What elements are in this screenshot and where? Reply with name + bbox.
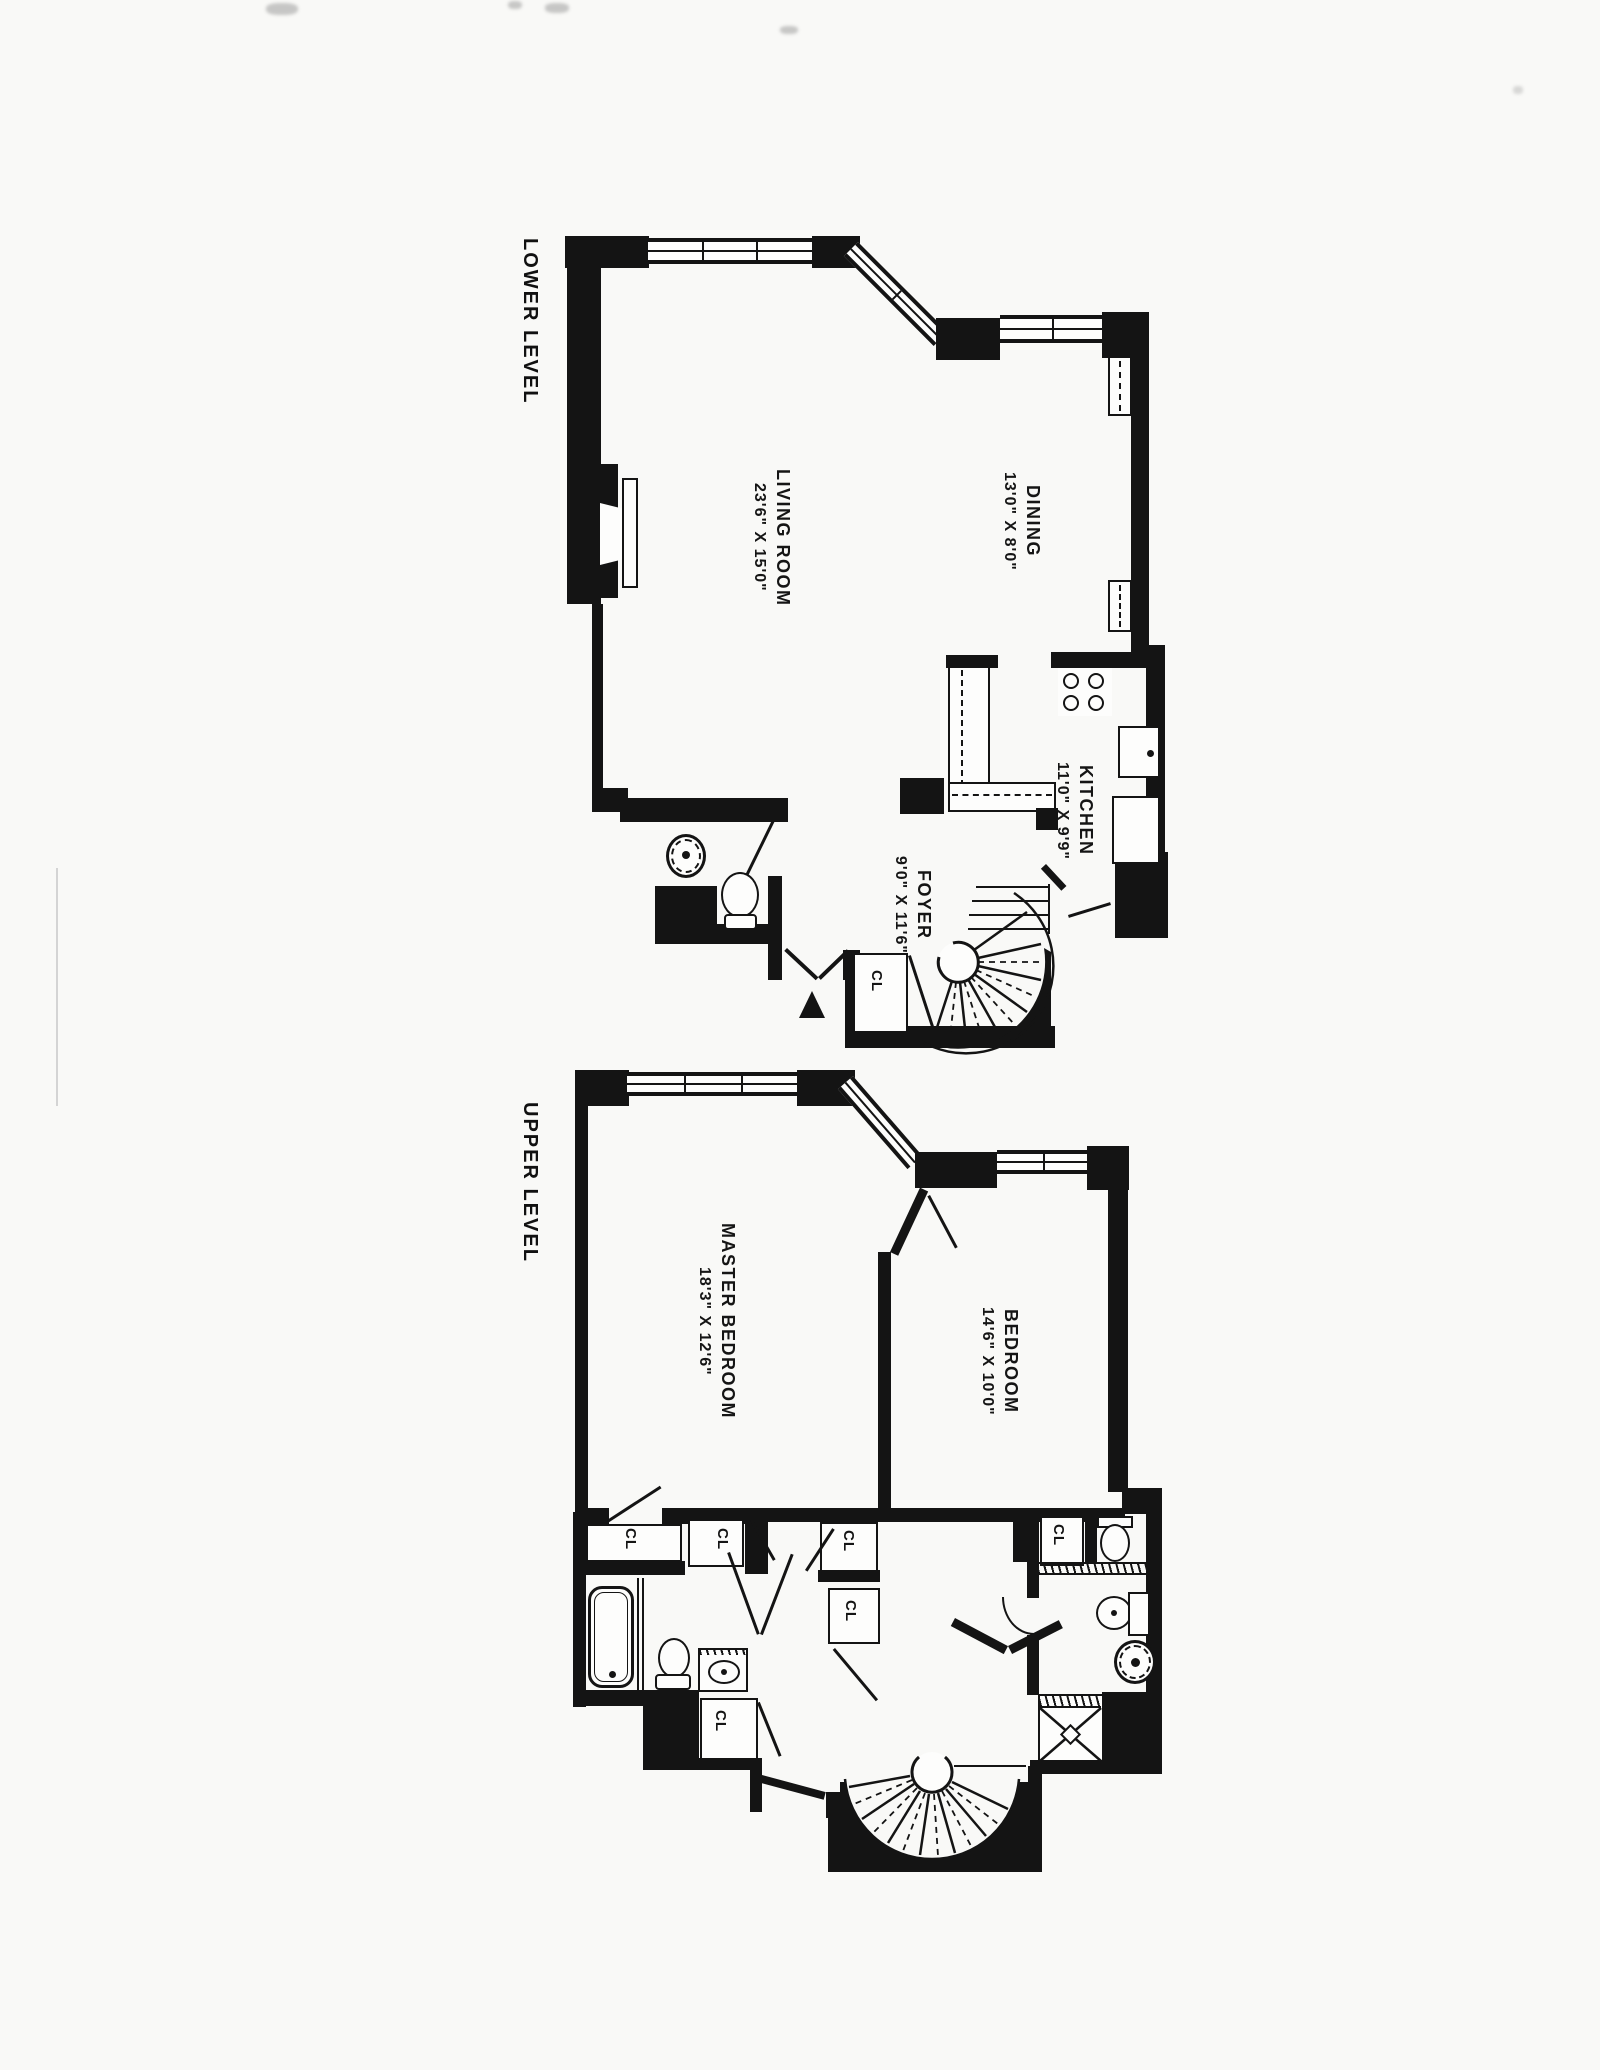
wall-segment	[567, 236, 601, 604]
wall-segment	[575, 1561, 685, 1575]
kitchen-sink	[1118, 726, 1160, 778]
room-dims: 18'3" X 12'6"	[695, 1192, 713, 1450]
toilet	[1100, 1524, 1130, 1562]
scan-smudge	[545, 3, 569, 13]
shower	[1038, 1694, 1104, 1764]
wall-segment	[818, 1570, 880, 1582]
window-mullion	[1052, 319, 1054, 339]
closet	[700, 1698, 758, 1762]
door-leaf	[746, 820, 775, 875]
door-leaf	[1068, 902, 1111, 918]
spiral-staircase	[845, 856, 1065, 1056]
wall-segment	[951, 1618, 1008, 1654]
scan-smudge	[508, 1, 522, 9]
wall-segment	[878, 1252, 891, 1512]
toilet-tank	[655, 1674, 691, 1690]
window-corner-bay	[844, 242, 948, 346]
window-mullion	[1043, 1154, 1045, 1170]
window-glazing-line	[627, 1083, 799, 1085]
scan-line-artifact	[56, 868, 58, 1106]
room-name: FOYER	[913, 830, 934, 980]
counter-dash	[961, 670, 963, 786]
radiator-dash	[1119, 585, 1121, 627]
room-name: BEDROOM	[1000, 1275, 1021, 1447]
bathtub	[588, 1586, 634, 1688]
drain-dot	[1131, 1658, 1140, 1667]
faucet-dot	[1147, 750, 1154, 757]
window	[627, 1072, 799, 1096]
wall-segment	[592, 604, 603, 800]
wall-segment	[643, 1690, 699, 1770]
closet-label: CL	[712, 1710, 729, 1750]
wall-segment	[575, 1508, 609, 1524]
scan-smudge	[266, 3, 298, 15]
shower-threshold	[1040, 1696, 1101, 1708]
wall-segment	[1115, 852, 1168, 938]
shelf	[1038, 1562, 1146, 1575]
towel-bar	[700, 1648, 746, 1655]
toilet	[658, 1638, 690, 1678]
wall-segment	[655, 924, 775, 944]
room-dims: 9'0" X 11'6"	[891, 830, 909, 980]
window-corner-bay	[838, 1076, 923, 1169]
wall-segment	[1131, 312, 1149, 658]
wall-segment	[575, 1102, 588, 1512]
bathtub-rim	[594, 1592, 628, 1682]
closet-label: CL	[842, 1600, 859, 1638]
wall-segment	[620, 798, 788, 822]
pedestal-sink	[1114, 1640, 1156, 1684]
wall-segment	[573, 1512, 586, 1707]
counter-dash	[952, 794, 1052, 796]
closet-label: CL	[1050, 1524, 1067, 1562]
room-name: KITCHEN	[1075, 718, 1096, 903]
window-glazing-line	[844, 1082, 915, 1163]
wall-segment	[900, 778, 944, 814]
window-mullion	[702, 242, 704, 260]
burner	[1063, 673, 1079, 689]
wall-segment	[1102, 1692, 1162, 1766]
wall-segment	[768, 876, 782, 980]
wall-segment	[1030, 1760, 1162, 1774]
window-glazing-line	[648, 250, 812, 252]
closet-label: CL	[622, 1528, 639, 1562]
wall-segment	[768, 1508, 893, 1522]
wall-segment	[890, 1508, 1015, 1522]
burner	[1088, 695, 1104, 711]
entry-door-leaf	[784, 948, 818, 980]
scan-smudge	[1513, 86, 1523, 94]
wall-segment	[1085, 1512, 1097, 1564]
room-label-foyer: FOYER 9'0" X 11'6"	[891, 830, 934, 980]
door-swing-arc	[1002, 1597, 1034, 1635]
room-label-living-room: LIVING ROOM 23'6" X 15'0"	[750, 440, 793, 635]
sink-basin	[1096, 1596, 1132, 1630]
door-leaf	[833, 1648, 878, 1701]
toilet-tank	[724, 914, 757, 930]
wall-segment	[575, 1070, 629, 1106]
room-name: LIVING ROOM	[772, 440, 793, 635]
window	[997, 1150, 1089, 1174]
burner	[1063, 695, 1079, 711]
wall-segment	[573, 1690, 645, 1706]
drain-dot	[721, 1669, 727, 1675]
scanned-floor-plan-page: LOWER LEVEL	[0, 0, 1600, 2070]
upper-level-title: UPPER LEVEL	[518, 1102, 541, 1288]
room-dims: 23'6" X 15'0"	[750, 440, 768, 635]
window	[648, 238, 812, 264]
spiral-staircase	[830, 1740, 1045, 1875]
room-dims: 11'0" X 9'9"	[1053, 718, 1071, 903]
wall-segment	[1108, 1186, 1128, 1492]
room-name: MASTER BEDROOM	[717, 1192, 738, 1450]
burner	[1088, 673, 1104, 689]
door-leaf	[927, 1195, 957, 1249]
drain-dot	[682, 851, 690, 859]
partition-wall	[637, 1578, 644, 1690]
shower-x	[1040, 1708, 1101, 1761]
refrigerator	[1112, 796, 1160, 864]
pedestal-sink	[666, 834, 706, 878]
north-arrow-icon	[799, 991, 825, 1018]
drain-dot	[609, 1671, 616, 1678]
fireplace-hearth	[622, 478, 638, 588]
room-label-master-bedroom: MASTER BEDROOM 18'3" X 12'6"	[695, 1192, 738, 1450]
wall-segment	[1051, 652, 1149, 668]
door-leaf	[607, 1486, 661, 1523]
wall-segment	[915, 1152, 997, 1188]
room-dims: 14'6" X 10'0"	[978, 1275, 996, 1447]
window-mullion	[684, 1076, 686, 1092]
window-mullion	[741, 1076, 743, 1092]
closet-label: CL	[840, 1530, 857, 1568]
window	[1000, 315, 1104, 343]
vanity-sink	[698, 1648, 748, 1692]
window-mullion	[756, 242, 758, 260]
room-name: DINING	[1022, 445, 1043, 597]
radiator	[1108, 356, 1132, 416]
radiator-dash	[1119, 361, 1121, 411]
lower-level-title: LOWER LEVEL	[518, 238, 541, 420]
wall-segment	[1027, 1508, 1039, 1598]
wall-segment	[750, 1762, 762, 1812]
room-label-bedroom: BEDROOM 14'6" X 10'0"	[978, 1275, 1021, 1447]
radiator	[1108, 580, 1132, 632]
scan-smudge	[780, 26, 798, 34]
drain-dot	[1111, 1610, 1117, 1616]
wall-segment	[1027, 1635, 1039, 1695]
vanity-cabinet	[1128, 1592, 1150, 1636]
stove-burners	[1058, 668, 1112, 716]
wall-segment	[760, 1775, 826, 1800]
toilet	[721, 872, 759, 918]
wall-segment	[1087, 1146, 1129, 1190]
wall-segment	[890, 1188, 928, 1256]
wall-segment	[936, 318, 1000, 360]
door-leaf	[757, 1702, 782, 1757]
room-dims: 13'0" X 8'0"	[1000, 445, 1018, 597]
room-label-dining: DINING 13'0" X 8'0"	[1000, 445, 1043, 597]
room-label-kitchen: KITCHEN 11'0" X 9'9"	[1053, 718, 1096, 903]
kitchen-counter	[948, 666, 990, 790]
